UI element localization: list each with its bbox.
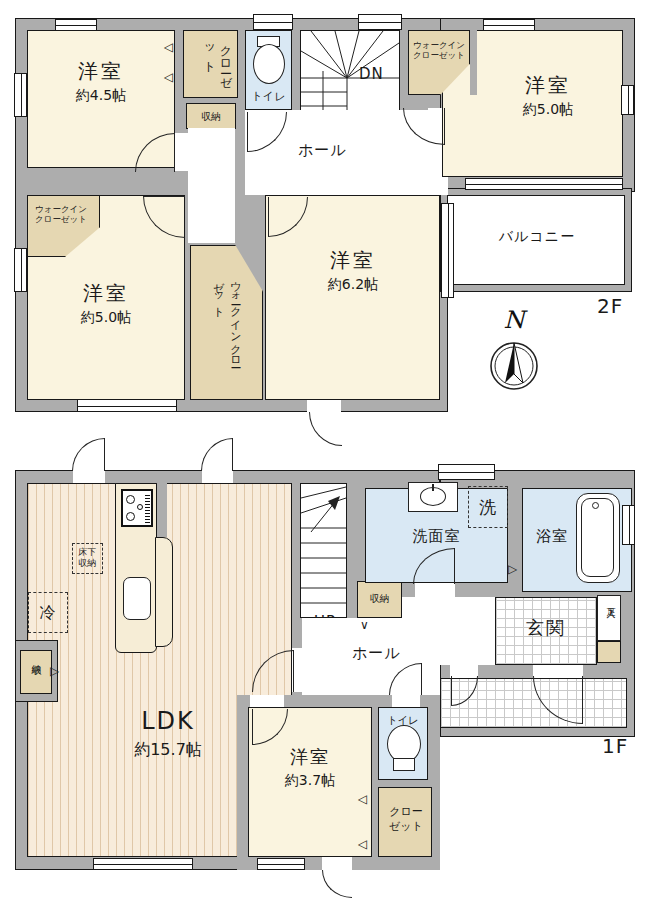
room-sw-size: 約5.0帖	[33, 309, 179, 327]
kitchen-wall-stub	[157, 483, 167, 537]
window-sliding	[77, 399, 177, 412]
washbasin-counter	[408, 482, 458, 512]
bath-door-mark-icon: ▷	[508, 563, 517, 575]
window-sliding	[465, 178, 623, 190]
closet-door-mark-icon: ◁	[358, 838, 367, 850]
hall-1f-label: ホール	[352, 644, 401, 663]
bathtub-icon	[576, 493, 620, 583]
kitchen-sink-icon	[123, 577, 151, 620]
window	[257, 858, 305, 870]
door-gap	[73, 470, 105, 483]
room-ne-size: 約5.0帖	[473, 101, 623, 119]
room-se-size: 約6.2帖	[280, 276, 426, 294]
fridge-space: 冷	[28, 592, 68, 633]
window	[14, 73, 27, 117]
closet-2f-label: クローゼット	[190, 37, 234, 85]
window	[14, 248, 27, 292]
door-gap	[392, 695, 420, 707]
closet-1f-label: クローゼット	[387, 804, 425, 834]
room-s-size: 約3.7帖	[249, 772, 371, 790]
window	[483, 19, 535, 31]
hall-1f-area3	[440, 597, 495, 665]
storage-2f-label: 収納	[187, 110, 235, 124]
door-gap	[250, 695, 284, 707]
window-sliding	[93, 858, 193, 870]
door-gap	[307, 400, 341, 412]
wic-w-label: ウォークイン クローゼット	[30, 204, 92, 224]
storage-stairs: 収納	[357, 581, 402, 618]
closet-door-mark-icon: ◁	[164, 71, 173, 83]
entrance-label: 玄関	[496, 616, 596, 640]
closet-1f: クローゼット	[378, 787, 432, 857]
kitchen-counter-return	[155, 537, 173, 647]
stairs-down-label: DN	[359, 65, 384, 83]
door-arc	[72, 438, 105, 471]
hall-2f-label: ホール	[298, 141, 347, 160]
room-s-name: 洋室	[249, 746, 371, 769]
toilet-tank-icon	[393, 758, 415, 771]
toilet-1f: トイレ	[378, 707, 428, 780]
closet-door-mark-icon: ◁	[164, 41, 173, 53]
storage-left-label: 収納	[30, 657, 43, 691]
compass-n-label: N	[504, 306, 529, 334]
door-gap	[202, 470, 233, 483]
room-4-5-size: 約4.5帖	[28, 87, 174, 105]
shoe-box-label: 下足入	[605, 601, 616, 639]
storage-left-wall: 収納	[20, 650, 52, 694]
bathroom-label: 浴室	[527, 527, 577, 546]
window	[441, 203, 454, 298]
hall-2f-channel	[188, 128, 235, 243]
window	[438, 464, 495, 480]
storage-door-mark-icon: ▷	[50, 665, 59, 677]
fridge-label: 冷	[29, 603, 66, 624]
door-arc	[201, 438, 233, 471]
door-gap	[322, 857, 352, 870]
toilet-2f: トイレ	[245, 30, 292, 110]
laundry-label: 洗	[469, 496, 506, 519]
toilet-2f-label: トイレ	[246, 89, 291, 104]
washroom-label: 洗面室	[366, 527, 507, 546]
folding-door-mark-icon: ∨	[360, 619, 369, 631]
room-4-5-name: 洋室	[28, 59, 174, 84]
floor-label-2f: 2F	[597, 294, 623, 318]
stairs-1f-treads-icon	[301, 484, 346, 617]
underfloor-storage: 床下収納	[72, 543, 103, 574]
wic-c-label: ウォークインクローゼット	[204, 274, 244, 374]
door-gap	[267, 182, 300, 195]
closet-door-mark-icon: ◁	[358, 793, 367, 805]
window	[55, 19, 97, 31]
door-gap	[175, 133, 188, 171]
room-sw-name: 洋室	[33, 281, 179, 306]
floor-plan: バルコニー 洋室 約4.5帖 ◁ ◁ クローゼット 収納 ∨ トイレ	[0, 0, 649, 900]
floor-label-1f: 1F	[602, 734, 628, 758]
stairs-1f	[300, 483, 347, 618]
stove-icon	[121, 489, 153, 527]
bathroom: 浴室	[522, 488, 632, 592]
closet-2f: クローゼット	[183, 30, 238, 98]
door-arc	[322, 870, 352, 898]
entrance-hall: 玄関	[495, 597, 597, 665]
window	[621, 85, 634, 115]
shoe-box: 下足入	[597, 595, 621, 641]
compass: N	[486, 306, 542, 400]
toilet-bowl-icon	[253, 44, 285, 84]
laundry-space: 洗	[468, 486, 508, 528]
f2-balcony: バルコニー	[447, 195, 625, 285]
window	[358, 14, 402, 30]
window	[253, 14, 293, 30]
underfloor-label: 床下収納	[76, 547, 98, 569]
door-arc	[309, 412, 342, 446]
shoe-box-lower	[597, 641, 621, 663]
wic-ne-label: ウォークイン クローゼット	[410, 40, 468, 60]
wic-ne-wall	[470, 30, 477, 95]
door-gap	[415, 583, 455, 597]
window	[622, 505, 635, 545]
storage-stairs-label: 収納	[358, 592, 401, 606]
storage-2f: 収納	[186, 103, 236, 129]
balcony-label: バルコニー	[448, 228, 626, 246]
hall-1f-area2	[402, 597, 440, 618]
room-ne-name: 洋室	[473, 73, 623, 98]
room-se-name: 洋室	[280, 248, 426, 273]
